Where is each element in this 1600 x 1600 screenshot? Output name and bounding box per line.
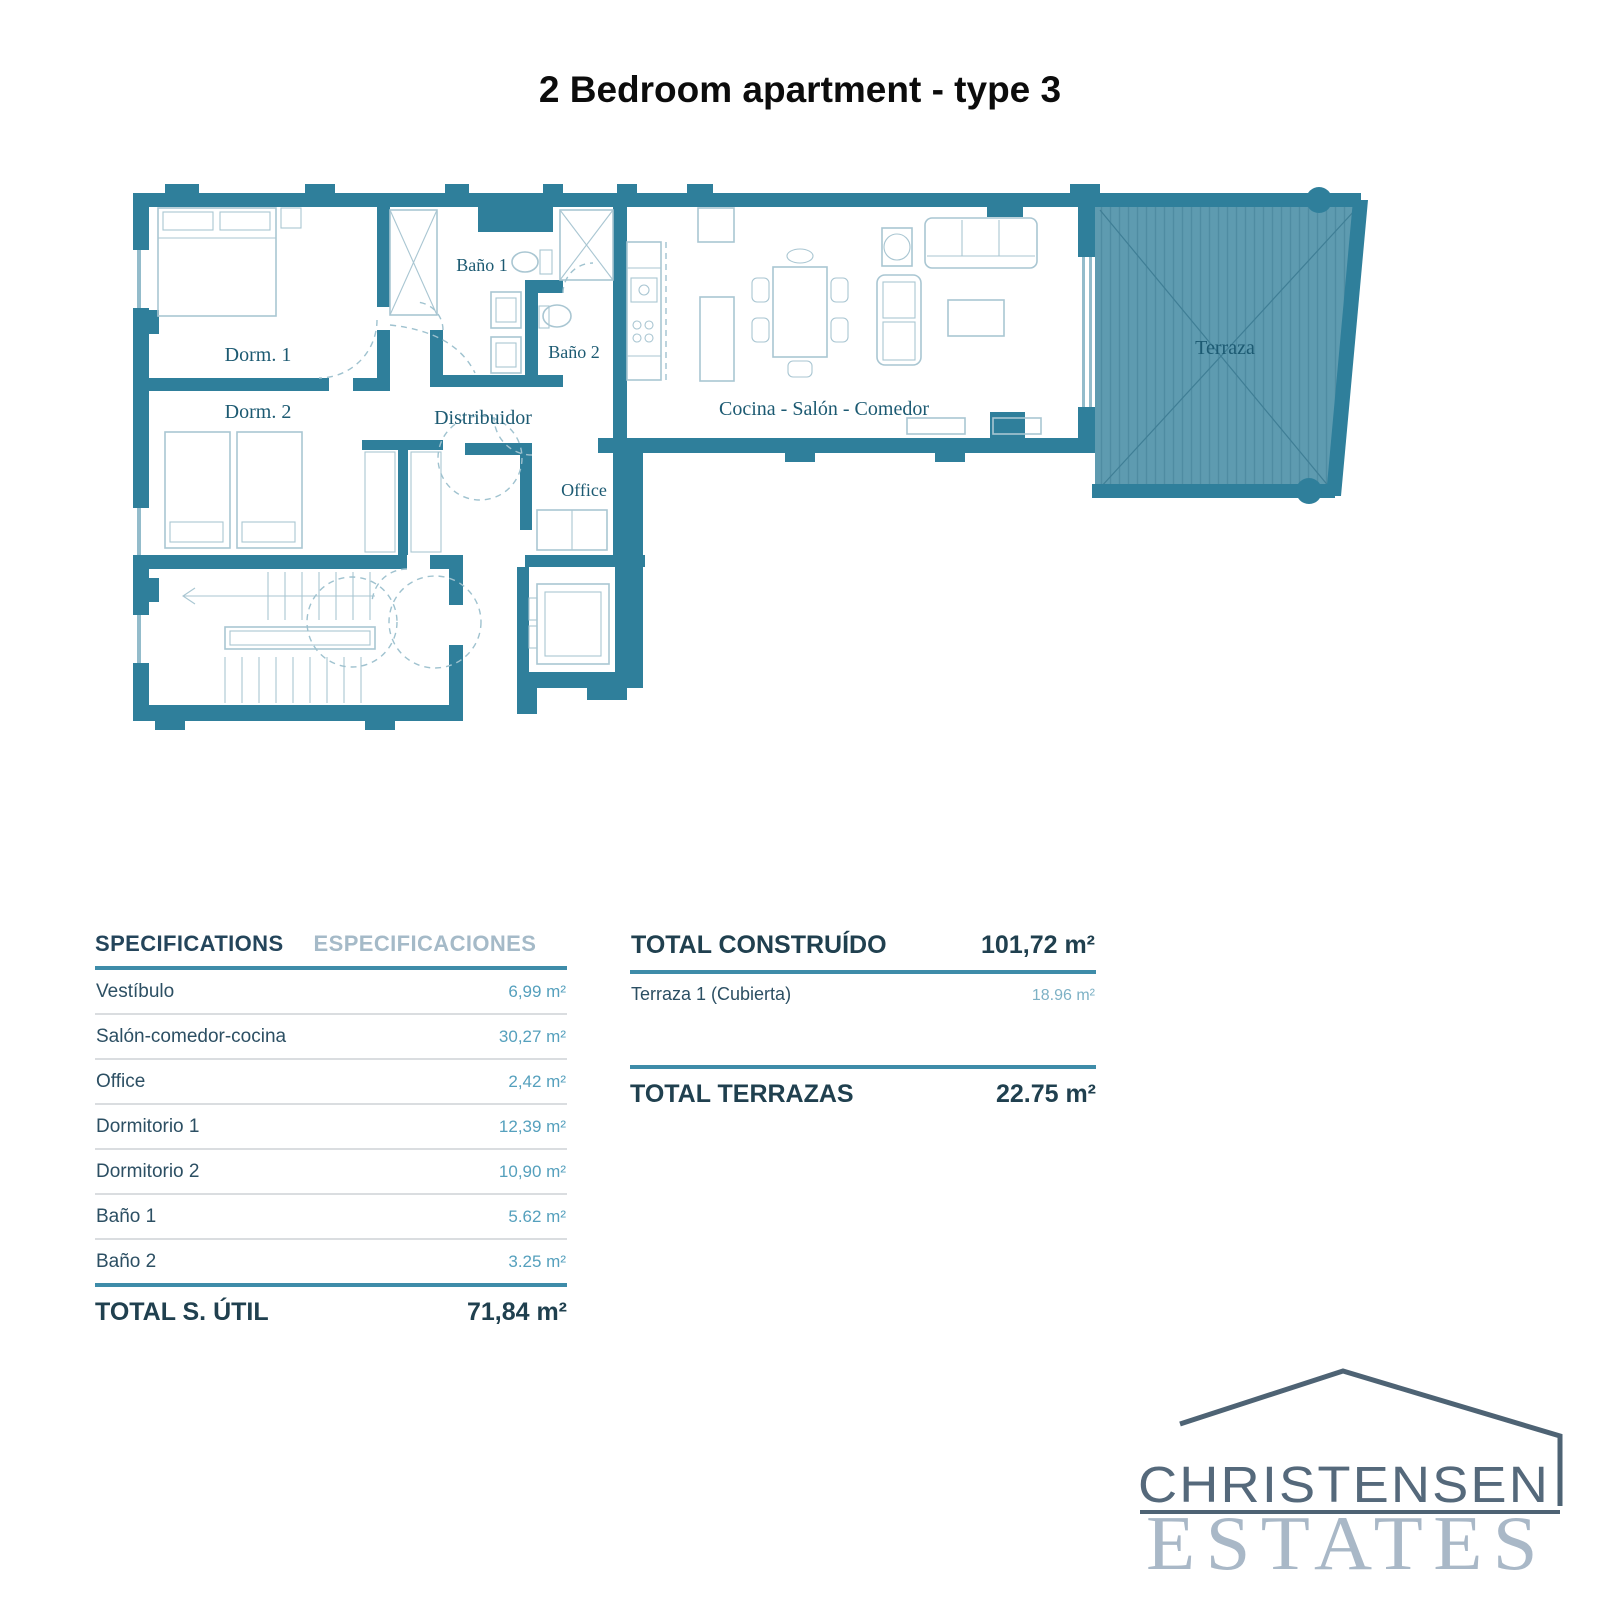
- spacer: [630, 1017, 1096, 1065]
- total-terrazas-value: 22.75 m²: [996, 1080, 1096, 1109]
- spec-row-value: 6,99 m²: [508, 982, 566, 1002]
- spec-total-value: 71,84 m²: [467, 1298, 567, 1327]
- spec-row-label: Salón-comedor-cocina: [96, 1026, 286, 1048]
- spec-row-value: 30,27 m²: [499, 1027, 566, 1047]
- total-terrazas-row: TOTAL TERRAZAS 22.75 m²: [630, 1069, 1096, 1109]
- spec-row-value: 12,39 m²: [499, 1117, 566, 1137]
- page-title: 2 Bedroom apartment - type 3: [0, 69, 1600, 111]
- total-construido-row: TOTAL CONSTRUÍDO 101,72 m²: [630, 931, 1096, 970]
- terraza-row: Terraza 1 (Cubierta) 18.96 m²: [630, 974, 1096, 1017]
- total-terrazas-label: TOTAL TERRAZAS: [630, 1080, 854, 1109]
- room-label-dorm1: Dorm. 1: [225, 344, 292, 366]
- floor-plan: Dorm. 1 Dorm. 2 Baño 1 Baño 2 Distribuid…: [125, 160, 1375, 730]
- spec-row-label: Office: [96, 1071, 145, 1093]
- room-label-bano1: Baño 1: [456, 255, 508, 275]
- furniture: [158, 208, 1041, 703]
- spec-row-value: 2,42 m²: [508, 1072, 566, 1092]
- spec-row-bano1: Baño 1 5.62 m²: [95, 1193, 567, 1238]
- spec-row-label: Dormitorio 1: [96, 1116, 199, 1138]
- brand-logo: CHRISTENSEN ESTATES: [1128, 1358, 1564, 1573]
- floor-plan-drawing: Dorm. 1 Dorm. 2 Baño 1 Baño 2 Distribuid…: [125, 160, 1375, 730]
- spec-row-value: 10,90 m²: [499, 1162, 566, 1182]
- total-construido-value: 101,72 m²: [981, 931, 1095, 960]
- brochure-page: 2 Bedroom apartment - type 3: [0, 0, 1600, 1600]
- logo-name-bottom: ESTATES: [1146, 1500, 1548, 1573]
- room-label-living: Cocina - Salón - Comedor: [719, 398, 929, 420]
- room-label-terraza: Terraza: [1195, 337, 1255, 359]
- total-construido-label: TOTAL CONSTRUÍDO: [631, 931, 887, 960]
- spec-row-office: Office 2,42 m²: [95, 1058, 567, 1103]
- spec-row-label: Baño 2: [96, 1251, 156, 1273]
- spec-total-row: TOTAL S. ÚTIL 71,84 m²: [95, 1287, 567, 1327]
- totals-table: TOTAL CONSTRUÍDO 101,72 m² Terraza 1 (Cu…: [630, 931, 1096, 1109]
- spec-row-value: 5.62 m²: [508, 1207, 566, 1227]
- spec-row-bano2: Baño 2 3.25 m²: [95, 1238, 567, 1283]
- spec-row-label: Baño 1: [96, 1206, 156, 1228]
- spec-total-label: TOTAL S. ÚTIL: [95, 1298, 269, 1327]
- spec-row-dormitorio1: Dormitorio 1 12,39 m²: [95, 1103, 567, 1148]
- stairs: [183, 572, 375, 703]
- room-label-distribuidor: Distribuidor: [434, 407, 532, 429]
- room-label-office: Office: [561, 480, 607, 500]
- specifications-header: SPECIFICATIONS ESPECIFICACIONES: [95, 931, 567, 966]
- spec-row-dormitorio2: Dormitorio 2 10,90 m²: [95, 1148, 567, 1193]
- terraza-row-label: Terraza 1 (Cubierta): [631, 984, 791, 1005]
- room-label-bano2: Baño 2: [548, 342, 600, 362]
- specifications-header-es: ESPECIFICACIONES: [314, 931, 537, 957]
- terraza-row-value: 18.96 m²: [1032, 987, 1095, 1005]
- spec-row-salon: Salón-comedor-cocina 30,27 m²: [95, 1013, 567, 1058]
- specifications-table: SPECIFICATIONS ESPECIFICACIONES Vestíbul…: [95, 931, 567, 1327]
- spec-row-label: Vestíbulo: [96, 981, 174, 1003]
- spec-row-value: 3.25 m²: [508, 1252, 566, 1272]
- spec-row-vestibulo: Vestíbulo 6,99 m²: [95, 970, 567, 1013]
- spec-row-label: Dormitorio 2: [96, 1161, 199, 1183]
- specifications-header-en: SPECIFICATIONS: [95, 931, 284, 957]
- room-label-dorm2: Dorm. 2: [225, 401, 292, 423]
